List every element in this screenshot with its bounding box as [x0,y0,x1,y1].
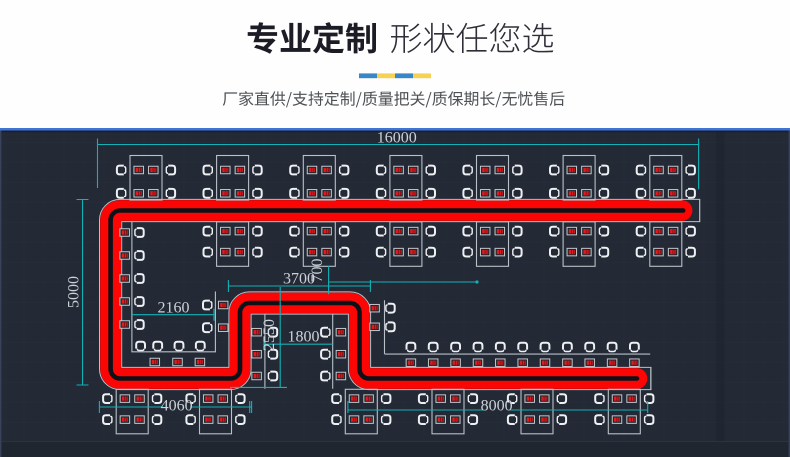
svg-text:16000: 16000 [377,129,417,146]
svg-text:700: 700 [309,259,326,283]
svg-text:8000: 8000 [481,397,513,414]
svg-text:1800: 1800 [288,328,320,345]
svg-text:5000: 5000 [66,276,83,308]
svg-text:2160: 2160 [158,300,190,317]
svg-text:2550: 2550 [261,319,278,351]
svg-text:4060: 4060 [161,397,193,414]
